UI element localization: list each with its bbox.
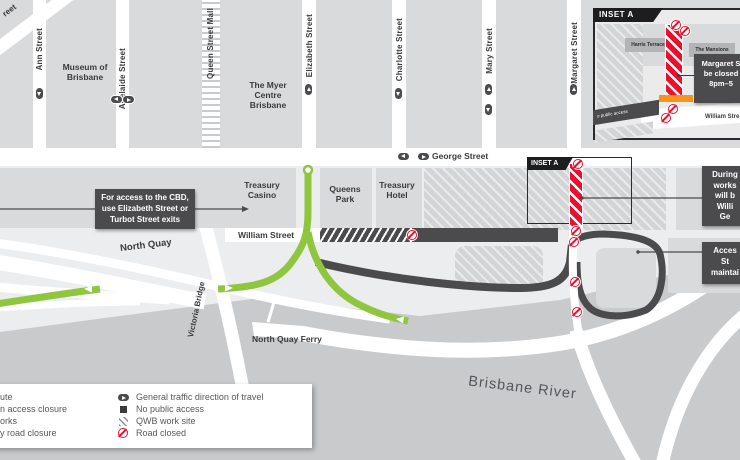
road-closed-icon <box>680 26 690 36</box>
inset-margaret-closure <box>666 25 682 95</box>
traffic-direction-icon <box>570 84 577 95</box>
road-closed-icon <box>572 307 582 317</box>
place-label-myer-centre: The Myer Centre Brisbane <box>249 80 286 110</box>
during-works-callout: During works will b Willi Ge <box>702 166 740 226</box>
street-label-margaret: Margaret Street <box>570 22 579 84</box>
inset-harris-terrace: Harris Terrace <box>625 38 671 52</box>
legend-item-no-access: No public access <box>136 404 204 414</box>
road-closed-icon <box>407 230 417 240</box>
traffic-direction-icon <box>305 84 312 95</box>
no-public-access-icon <box>120 406 127 413</box>
legend-item-works: orks <box>0 416 17 426</box>
traffic-direction-icon <box>118 394 129 401</box>
legend-item-road-closure: y road closure <box>0 428 57 438</box>
inset-road-note: o public access <box>597 109 628 119</box>
no-access-loop-road <box>572 234 662 316</box>
street-label-george: George Street <box>432 151 488 161</box>
works-leader-dot <box>580 196 583 199</box>
traffic-direction-icon <box>123 96 134 103</box>
street-label-mary: Mary Street <box>485 28 494 74</box>
traffic-direction-icon <box>36 88 43 99</box>
no-access-road-curve <box>316 244 572 288</box>
inset-barrier <box>659 95 693 102</box>
street-label-elizabeth: Elizabeth Street <box>305 14 314 77</box>
qwb-work-site-icon <box>119 417 128 426</box>
street-label-william: William Street <box>238 230 294 240</box>
street-label-ann: Ann Street <box>35 28 44 70</box>
road-closed-icon <box>668 104 678 114</box>
road-closed-icon <box>661 113 671 123</box>
traffic-direction-icon <box>485 104 492 115</box>
qwb-road-closure-map: { "streets": { "ann": "Ann Street", "ade… <box>0 0 740 460</box>
legend-item-work-site: QWB work site <box>136 416 196 426</box>
traffic-direction-icon <box>485 84 492 95</box>
ferry-pier <box>268 302 274 322</box>
detour-route-west <box>0 289 100 304</box>
legend: ute n access closure orks y road closure… <box>0 384 312 448</box>
road-closed-icon <box>118 428 128 438</box>
inset-work-site-area <box>597 24 643 110</box>
road-closed-icon <box>569 237 579 247</box>
place-label-museum: Museum of Brisbane <box>63 62 108 82</box>
legend-item-access-closure: n access closure <box>0 404 67 414</box>
traffic-direction-icon <box>395 88 402 99</box>
traffic-direction-icon <box>111 96 122 103</box>
place-label-queens-park: Queens Park <box>329 184 360 204</box>
road-closed-icon <box>573 159 583 169</box>
place-label-treasury-casino: Treasury Casino <box>244 180 279 200</box>
inset-work-site-bottom <box>595 121 653 142</box>
inset-leader-line <box>679 75 695 76</box>
legend-item-direction: General traffic direction of travel <box>136 392 263 402</box>
road-closed-icon <box>571 226 581 236</box>
cbd-callout-arrow <box>242 206 249 212</box>
access-leader-dot <box>636 250 639 253</box>
road-closed-icon <box>570 277 580 287</box>
inset-title: INSET A <box>593 8 663 22</box>
street-label-queen-mall: Queen Street Mall <box>206 8 215 79</box>
place-label-ferry: North Quay Ferry <box>252 334 322 344</box>
street-label-charlotte: Charlotte Street <box>395 18 404 81</box>
legend-item-road-closed: Road closed <box>136 428 186 438</box>
access-maintained-callout: Acces St maintai <box>702 242 740 284</box>
inset-margaret-callout: Margaret S be closed 8pm–5 <box>694 54 740 103</box>
inset-a-panel: Harris Terrace The Mansions o public acc… <box>593 8 740 140</box>
legend-item-route: ute <box>0 392 13 402</box>
route-end-marker <box>304 166 312 174</box>
traffic-direction-icon <box>418 153 429 160</box>
inset-william-label: William Stre <box>705 114 739 120</box>
cbd-access-callout: For access to the CBD, use Elizabeth Str… <box>95 189 195 229</box>
place-label-treasury-hotel: Treasury Hotel <box>379 180 414 200</box>
traffic-direction-icon <box>398 153 409 160</box>
